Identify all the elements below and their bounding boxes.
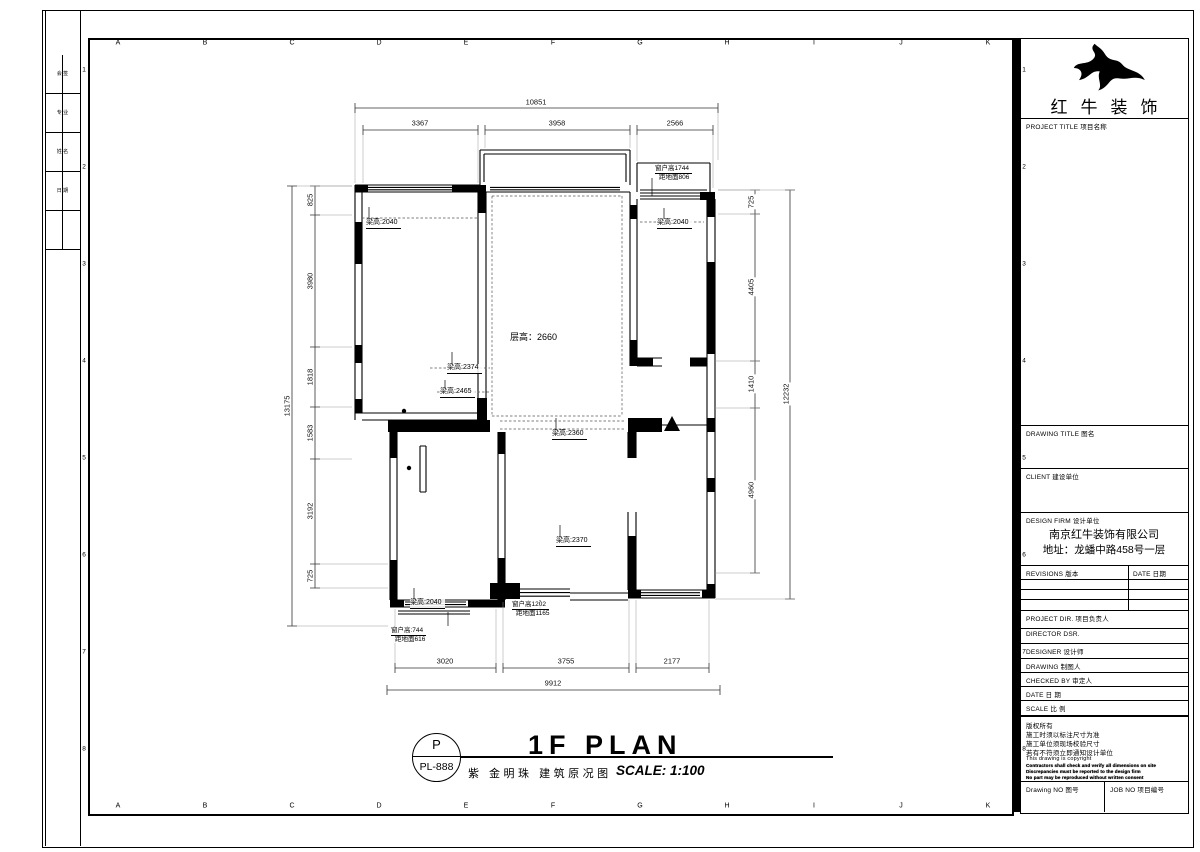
plan-title: 1F PLAN [528,730,683,761]
drawing-number-stamp: P PL-888 [412,733,461,782]
design-firm-address: 地址：龙蟠中路458号一层 [1020,542,1188,557]
dim-left-seg-4: 1583 [306,424,315,443]
dim-bottom-seg-1: 3020 [436,657,455,666]
dim-left-seg-2: 3980 [306,272,315,291]
beam-label-mid-2: 梁高:2465 [440,388,475,398]
beam-label-top-left: 梁高:2040 [366,219,401,229]
dim-right-total: 12232 [782,383,791,406]
project-dir-label: PROJECT DIR. 项目负责人 [1026,613,1109,623]
project-title-label: PROJECT TITLE 项目名称 [1026,121,1107,131]
dim-top-seg-3: 2566 [666,119,685,128]
room-height-label: 层高：2660 [510,332,557,342]
copyright-line-5: This drawing is copyright [1026,756,1092,762]
tb-divider-10 [1020,672,1188,673]
tb-divider-11 [1020,686,1188,687]
dim-left-seg-1: 825 [306,193,315,208]
revisions-row-line-3 [1020,599,1188,600]
beam-label-top-right: 梁高:2040 [657,219,692,229]
copyright-fineprint-3: No part may be reproduced without writte… [1026,775,1143,780]
job-no-label: JOB NO 项目编号 [1110,784,1164,794]
dim-left-seg-5: 3192 [306,502,315,521]
floor-plan-linework [0,0,1200,852]
design-firm-name: 南京红牛装饰有限公司 [1020,526,1188,542]
dim-bottom-total: 9912 [544,679,563,688]
stamp-divider [413,756,460,757]
drawing-no-divider [1104,781,1105,812]
dim-left-seg-3: 1818 [306,368,315,387]
dim-bottom-seg-3: 2177 [663,657,682,666]
stamp-letter: P [413,734,460,756]
stamp-code: PL-888 [413,756,460,778]
dim-right-seg-2: 4405 [747,278,756,297]
copyright-fineprint-2: Discrepancies must be reported to the de… [1026,769,1141,774]
tb-divider-4 [1020,512,1188,513]
revisions-row-line-2 [1020,589,1188,590]
date-col-label: DATE 日期 [1133,568,1166,578]
date-label: DATE 日 期 [1026,689,1061,699]
director-label: DIRECTOR DSR. [1026,631,1080,638]
company-logo-text: 红牛装饰 [1020,93,1188,118]
revisions-col-divider [1128,565,1129,610]
drawing-person-label: DRAWING 制图人 [1026,661,1081,671]
dim-left-seg-6: 725 [306,569,315,584]
tb-divider-6 [1020,610,1188,611]
beam-label-mid-1: 梁高:2374 [447,364,482,374]
company-logo-bull-icon [1055,42,1155,94]
tb-divider-1 [1020,118,1188,119]
entry-arrow [664,416,680,431]
dim-top-seg-1: 3367 [411,119,430,128]
plan-subtitle: 紫 金明珠 建筑原况图 [468,765,612,781]
scale-label: SCALE 比 例 [1026,703,1066,713]
tb-divider-8 [1020,643,1188,644]
beam-label-bottom-mid: 梁高:2370 [556,537,591,547]
dim-right-seg-4: 4960 [747,481,756,500]
revisions-row-line-1 [1020,579,1188,580]
beam-label-bottom-left: 梁高:2040 [410,599,445,609]
window-label-bottom-left: 窗户高:744 距地面616 [391,627,426,643]
tb-divider-5 [1020,565,1188,566]
drawing-title-label: DRAWING TITLE 图名 [1026,428,1095,438]
window-label-top-right: 窗户高1744 距地面806 [655,165,692,181]
designer-label: DESIGNER 设计师 [1026,646,1084,656]
dim-top-total: 10851 [525,98,548,107]
copyright-fineprint-1: Contractors shall check and verify all d… [1026,763,1156,768]
checked-by-label: CHECKED BY 审定人 [1026,675,1092,685]
tb-divider-7 [1020,628,1188,629]
client-label: CLIENT 建设单位 [1026,471,1079,481]
drawing-no-label: Drawing NO 图号 [1026,784,1079,794]
tb-divider-3 [1020,468,1188,469]
dim-top-seg-2: 3958 [548,119,567,128]
window-label-bottom-mid: 窗户高1202 距地面1165 [512,601,549,617]
tb-divider-2 [1020,425,1188,426]
tb-divider-13 [1020,715,1188,717]
dim-left-total: 13175 [283,395,292,418]
design-firm-label: DESIGN FIRM 设计单位 [1026,515,1100,525]
tb-divider-12 [1020,700,1188,701]
revisions-label: REVISIONS 版本 [1026,568,1079,578]
dim-bottom-seg-2: 3755 [557,657,576,666]
plan-scale-text: SCALE: 1:100 [616,763,705,778]
dim-right-seg-3: 1410 [747,375,756,394]
tb-divider-9 [1020,658,1188,659]
beam-label-mid-3: 梁高:2360 [552,430,587,440]
dim-right-seg-1: 725 [747,195,756,210]
